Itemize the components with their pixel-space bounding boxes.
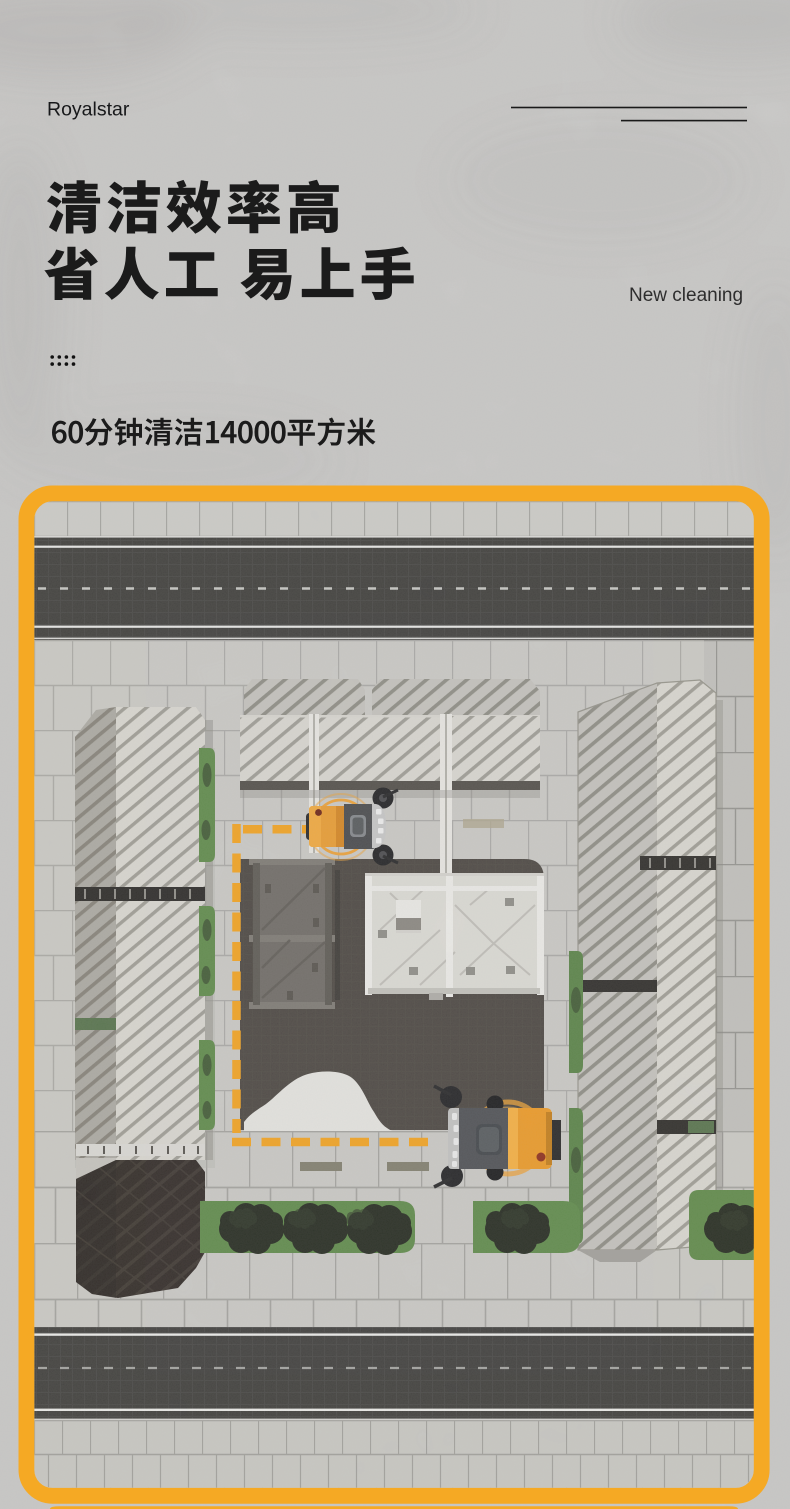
svg-text:New cleaning: New cleaning [629,285,743,306]
svg-text:Royalstar: Royalstar [47,99,130,121]
